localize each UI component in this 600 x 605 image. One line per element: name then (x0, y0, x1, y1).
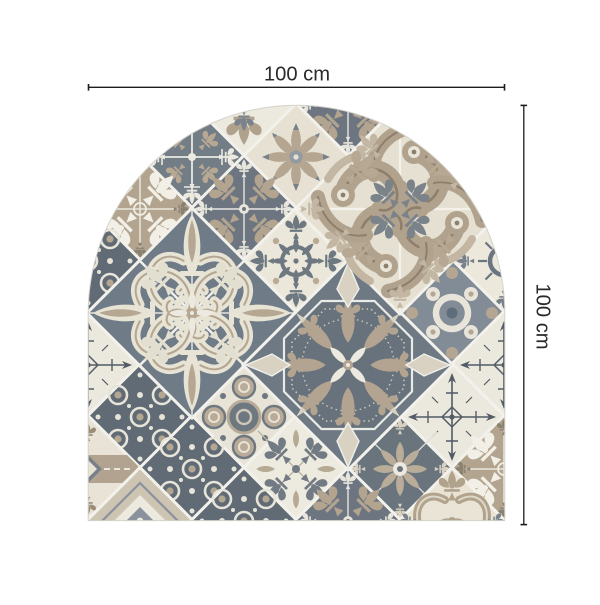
svg-text:100 cm: 100 cm (532, 283, 554, 349)
svg-text:100 cm: 100 cm (264, 64, 330, 86)
